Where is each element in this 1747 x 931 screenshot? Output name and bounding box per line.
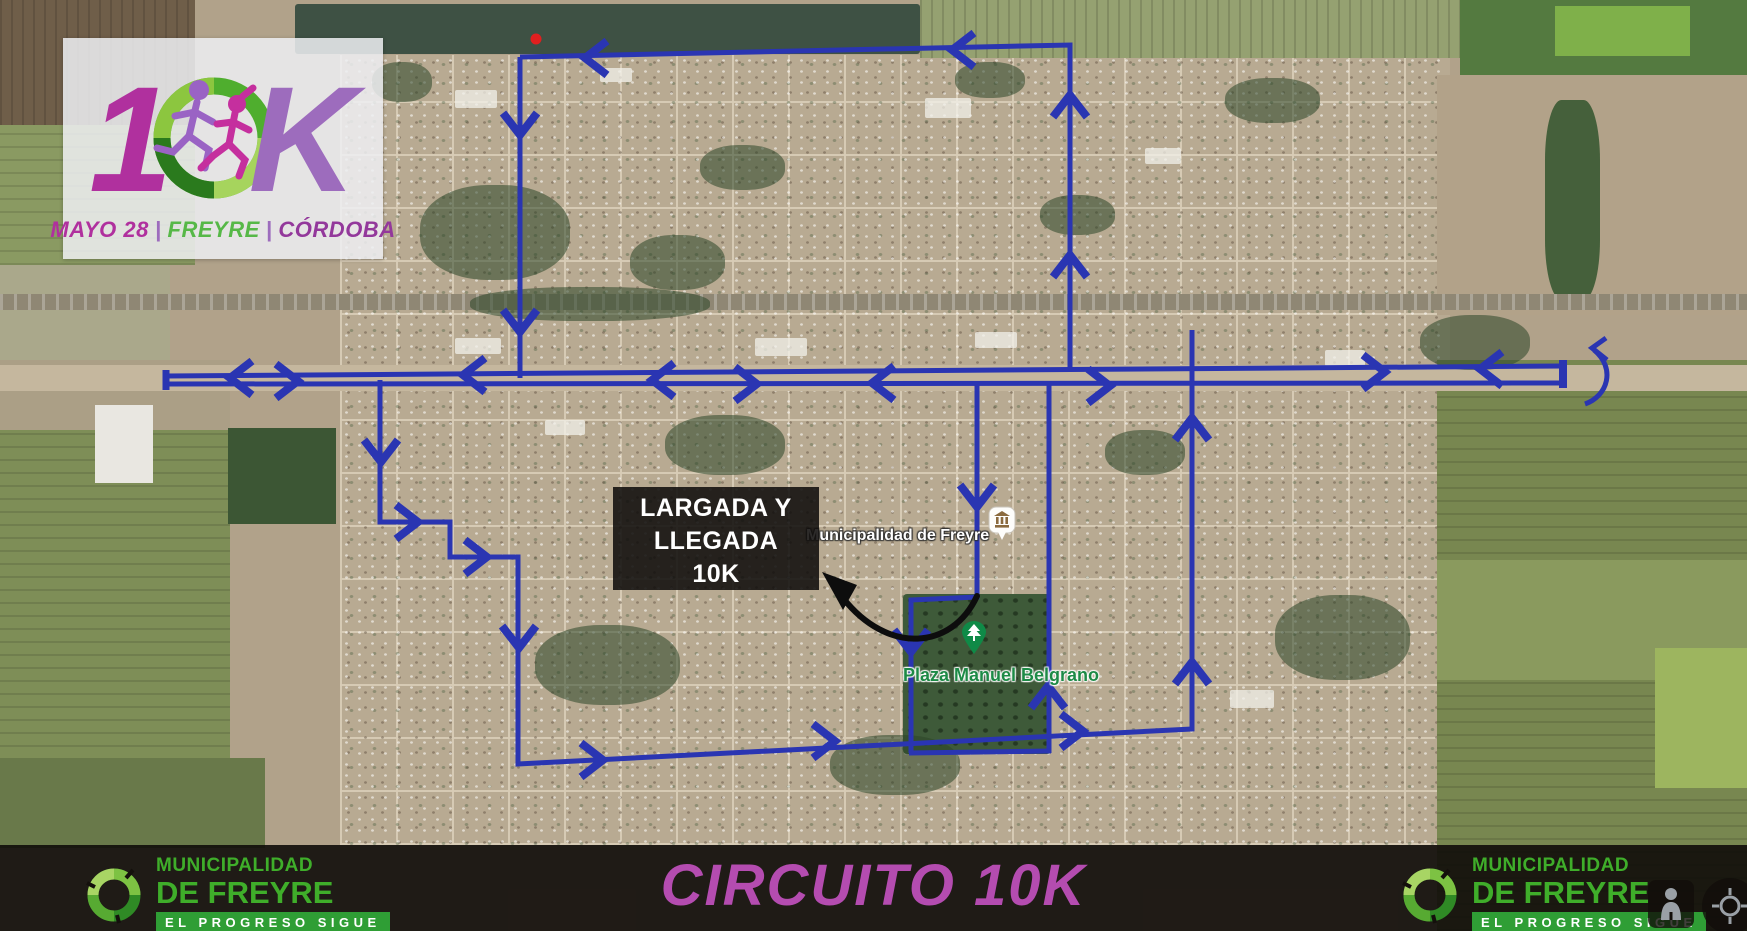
municipality-logo-line2: DE FREYRE (156, 877, 390, 908)
municipality-map-label: Municipalidad de Freyre (806, 527, 989, 545)
municipality-logo-left: MUNICIPALIDAD DE FREYRE EL PROGRESO SIGU… (84, 856, 390, 931)
event-place: FREYRE (168, 217, 260, 242)
start-finish-line1: LARGADA Y (613, 492, 819, 525)
start-finish-line3: 10K (613, 558, 819, 591)
start-finish-box: LARGADA Y LLEGADA 10K (613, 487, 819, 590)
municipality-logo-line1: MUNICIPALIDAD (1472, 856, 1706, 875)
municipality-logo-line1: MUNICIPALIDAD (156, 856, 390, 875)
finish-pointer-arrow-icon (822, 572, 977, 639)
plaza-map-label: Plaza Manuel Belgrano (903, 665, 1099, 686)
circuit-title: CIRCUITO 10K (661, 852, 1087, 919)
event-logo-10k: 1 (89, 55, 357, 223)
circuit-map-flyer: Municipalidad de Freyre Plaza Manuel Bel… (0, 0, 1747, 931)
red-dot-marker (531, 34, 542, 45)
event-logo-card: 1 (63, 38, 383, 259)
municipality-ring-icon (84, 865, 144, 925)
runner-female-icon (201, 88, 253, 176)
landmark-pin-icon[interactable] (988, 506, 1016, 542)
municipality-logo-tagline: EL PROGRESO SIGUE (156, 912, 390, 931)
logo-letter-k: K (249, 64, 357, 214)
municipality-ring-icon (1400, 865, 1460, 925)
pegman-icon[interactable] (1648, 880, 1694, 928)
park-pin-icon[interactable] (961, 620, 987, 655)
locate-icon[interactable] (1702, 878, 1747, 931)
start-finish-line2: LLEGADA (613, 525, 819, 558)
